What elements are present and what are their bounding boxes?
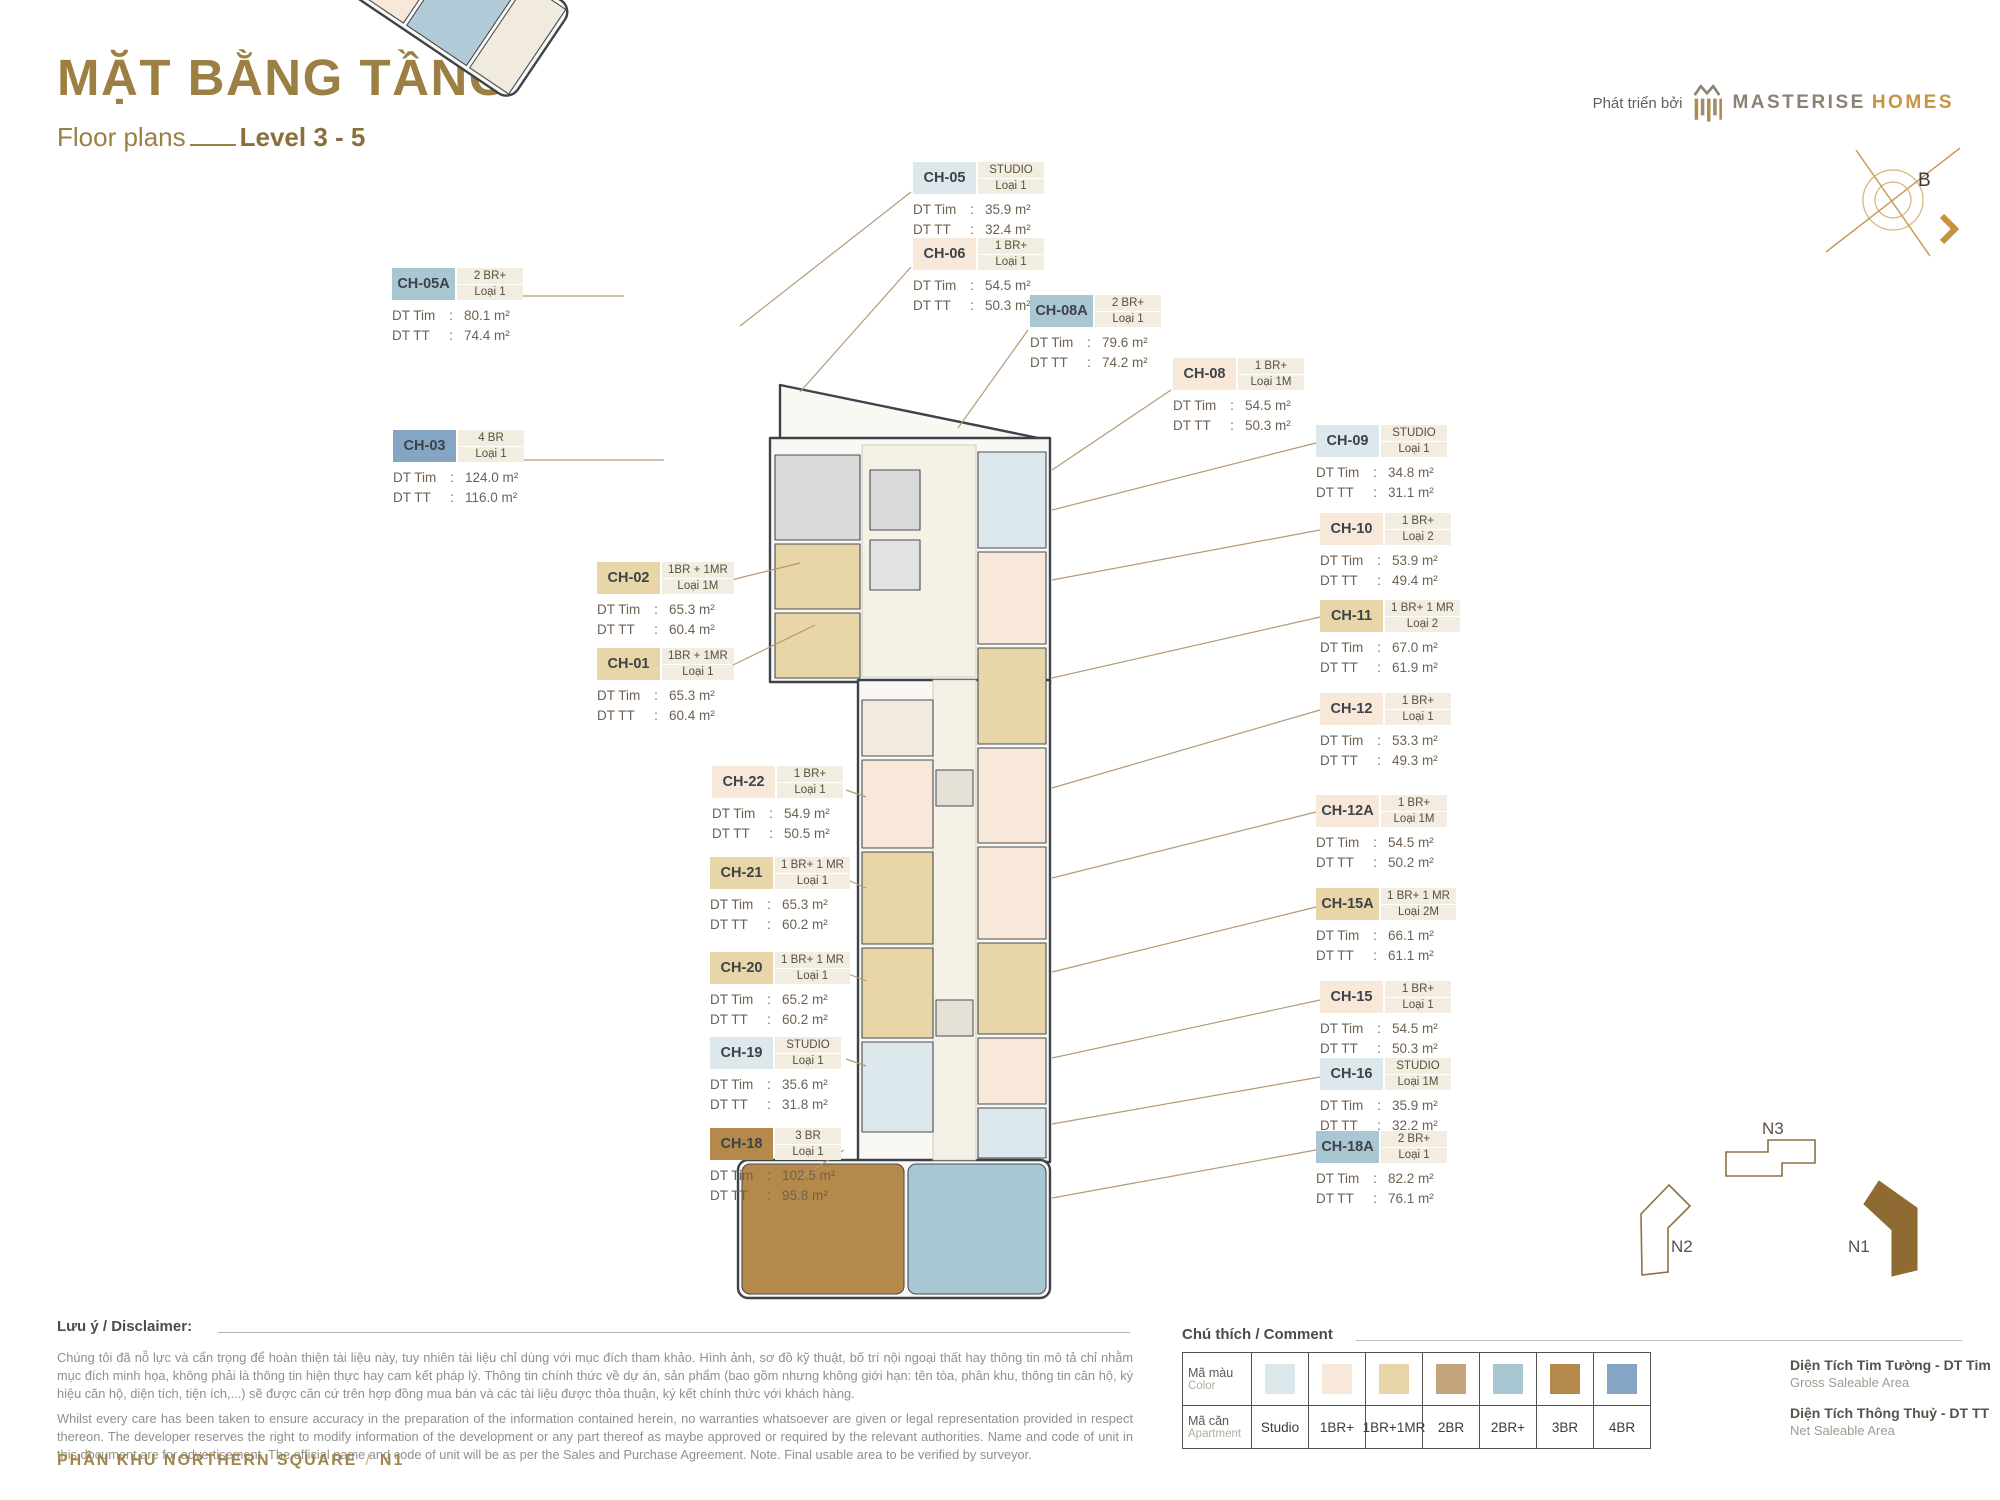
dt-tim-value: 34.8 m² — [1382, 463, 1434, 483]
unit-code: CH-02 — [597, 562, 660, 594]
dt-tt-row: DT TT:60.2 m² — [710, 915, 890, 935]
dt-tim-value: 102.5 m² — [776, 1166, 835, 1186]
dt-tim-label: DT Tim — [393, 468, 445, 488]
unit-variant: Loại 1 — [1095, 312, 1161, 328]
dt-tt-value: 49.3 m² — [1386, 751, 1438, 771]
unit-code: CH-22 — [712, 766, 775, 798]
unit-areas: DT Tim:54.9 m² DT TT:50.5 m² — [712, 804, 892, 844]
unit-type-chip: STUDIO Loại 1 — [978, 162, 1044, 194]
dt-tt-label: DT TT — [712, 824, 764, 844]
unit-areas: DT Tim:65.3 m² DT TT:60.2 m² — [710, 895, 890, 935]
unit-type: 1 BR+ — [1385, 693, 1451, 709]
unit-areas: DT Tim:34.8 m² DT TT:31.1 m² — [1316, 463, 1496, 503]
unit-variant: Loại 1 — [775, 1054, 841, 1070]
dt-tim-row: DT Tim:54.5 m² — [1316, 833, 1496, 853]
minimap-label-n1: N1 — [1848, 1237, 1870, 1256]
unit-type: 1 BR+ — [1381, 795, 1447, 811]
unit-callout: CH-10 1 BR+ Loại 2 DT Tim:53.9 m² DT TT:… — [1320, 513, 1500, 591]
legend-swatch — [1265, 1364, 1295, 1394]
unit-type: 1 BR+ — [1385, 513, 1451, 529]
dt-tim-row: DT Tim:65.3 m² — [597, 600, 777, 620]
dt-tt-label: DT TT — [913, 220, 965, 240]
unit-variant: Loại 1 — [1381, 1148, 1447, 1164]
legend-swatch-cell — [1365, 1353, 1422, 1405]
dt-tt-value: 50.3 m² — [979, 296, 1031, 316]
dt-tt-row: DT TT:95.8 m² — [710, 1186, 890, 1206]
dt-tt-label: DT TT — [710, 1010, 762, 1030]
dt-tt-label: DT TT — [913, 296, 965, 316]
dt-tim-value: 65.3 m² — [663, 600, 715, 620]
unit-type-chip: 1 BR+ Loại 2 — [1385, 513, 1451, 545]
unit-callout: CH-19 STUDIO Loại 1 DT Tim:35.6 m² DT TT… — [710, 1037, 890, 1115]
unit-type-chip: 1 BR+ Loại 1 — [1385, 981, 1451, 1013]
unit-areas: DT Tim:54.5 m² DT TT:50.3 m² — [1320, 1019, 1500, 1059]
dt-tim-label: DT Tim — [1030, 333, 1082, 353]
unit-areas: DT Tim:124.0 m² DT TT:116.0 m² — [393, 468, 573, 508]
unit-areas: DT Tim:102.5 m² DT TT:95.8 m² — [710, 1166, 890, 1206]
unit-type: 1 BR+ — [978, 238, 1044, 254]
legend-type-label: Studio — [1251, 1406, 1308, 1448]
dt-tim-row: DT Tim:54.5 m² — [1320, 1019, 1500, 1039]
unit-areas: DT Tim:53.9 m² DT TT:49.4 m² — [1320, 551, 1500, 591]
zone-name: PHÂN KHU NORTHERN SQUARE — [57, 1452, 357, 1469]
dt-tt-label: DT TT — [1316, 946, 1368, 966]
dt-tt-label: DT TT — [597, 706, 649, 726]
unit-callout: CH-20 1 BR+ 1 MR Loại 1 DT Tim:65.2 m² D… — [710, 952, 890, 1030]
unit-type: STUDIO — [1385, 1058, 1451, 1074]
dt-tt-label: DT TT — [710, 915, 762, 935]
area-definition-en: Gross Saleable Area — [1790, 1374, 1991, 1391]
unit-type: 1 BR+ 1 MR — [775, 857, 850, 873]
unit-chip-row: CH-16 STUDIO Loại 1M — [1320, 1058, 1500, 1090]
unit-chip-row: CH-08A 2 BR+ Loại 1 — [1030, 295, 1210, 327]
unit-areas: DT Tim:35.9 m² DT TT:32.2 m² — [1320, 1096, 1500, 1136]
dt-tt-label: DT TT — [710, 1095, 762, 1115]
unit-code: CH-05 — [913, 162, 976, 194]
legend-swatch — [1436, 1364, 1466, 1394]
unit-callout: CH-12A 1 BR+ Loại 1M DT Tim:54.5 m² DT T… — [1316, 795, 1496, 873]
dt-tim-value: 35.6 m² — [776, 1075, 828, 1095]
unit-type-chip: 1BR + 1MR Loại 1M — [662, 562, 734, 594]
dt-tt-label: DT TT — [393, 488, 445, 508]
minimap-label-n3: N3 — [1762, 1119, 1784, 1138]
unit-callout: CH-11 1 BR+ 1 MR Loại 2 DT Tim:67.0 m² D… — [1320, 600, 1500, 678]
legend-swatches — [1251, 1353, 1650, 1405]
unit-type: 1BR + 1MR — [662, 648, 734, 664]
dt-tim-row: DT Tim:54.5 m² — [1173, 396, 1353, 416]
unit-code: CH-06 — [913, 238, 976, 270]
dt-tim-value: 80.1 m² — [458, 306, 510, 326]
dt-tim-label: DT Tim — [1320, 638, 1372, 658]
dt-tt-label: DT TT — [1316, 483, 1368, 503]
dt-tt-row: DT TT:50.5 m² — [712, 824, 892, 844]
minimap-block-n3-shape — [1726, 1140, 1815, 1176]
area-definition: Diện Tích Thông Thuỷ - DT TT Net Saleabl… — [1790, 1404, 1991, 1439]
unit-callout: CH-15A 1 BR+ 1 MR Loại 2M DT Tim:66.1 m²… — [1316, 888, 1496, 966]
unit-type: STUDIO — [1381, 425, 1447, 441]
unit-type: STUDIO — [978, 162, 1044, 178]
unit-areas: DT Tim:80.1 m² DT TT:74.4 m² — [392, 306, 572, 346]
unit-type: 3 BR — [775, 1128, 841, 1144]
unit-variant: Loại 1 — [457, 285, 523, 301]
disclaimer-paragraph-vn: Chúng tôi đã nỗ lực và cẩn trọng để hoàn… — [57, 1349, 1133, 1403]
dt-tim-value: 54.9 m² — [778, 804, 830, 824]
area-definition: Diện Tích Tim Tường - DT Tim Gross Salea… — [1790, 1356, 1991, 1391]
unit-variant: Loại 1M — [1385, 1075, 1451, 1091]
unit-callout: CH-09 STUDIO Loại 1 DT Tim:34.8 m² DT TT… — [1316, 425, 1496, 503]
dt-tt-value: 116.0 m² — [459, 488, 517, 508]
unit-chip-row: CH-21 1 BR+ 1 MR Loại 1 — [710, 857, 890, 889]
unit-variant: Loại 1 — [978, 255, 1044, 271]
dt-tim-row: DT Tim:53.9 m² — [1320, 551, 1500, 571]
legend-apartment-row: Mã căn Apartment Studio 1BR+ 1BR+1MR 2BR… — [1183, 1405, 1650, 1448]
unit-chip-row: CH-20 1 BR+ 1 MR Loại 1 — [710, 952, 890, 984]
unit-code: CH-05A — [392, 268, 455, 300]
dt-tim-value: 54.5 m² — [1239, 396, 1291, 416]
unit-type: 2 BR+ — [1095, 295, 1161, 311]
dt-tim-label: DT Tim — [710, 895, 762, 915]
dt-tt-label: DT TT — [597, 620, 649, 640]
unit-chip-row: CH-09 STUDIO Loại 1 — [1316, 425, 1496, 457]
disclaimer-heading: Lưu ý / Disclaimer: — [57, 1318, 192, 1335]
unit-type: 1 BR+ 1 MR — [775, 952, 850, 968]
unit-callout: CH-12 1 BR+ Loại 1 DT Tim:53.3 m² DT TT:… — [1320, 693, 1500, 771]
area-definition-en: Net Saleable Area — [1790, 1422, 1991, 1439]
dt-tt-value: 50.3 m² — [1239, 416, 1291, 436]
unit-chip-row: CH-19 STUDIO Loại 1 — [710, 1037, 890, 1069]
dt-tt-label: DT TT — [1316, 1189, 1368, 1209]
unit-areas: DT Tim:35.9 m² DT TT:32.4 m² — [913, 200, 1093, 240]
dt-tt-value: 31.8 m² — [776, 1095, 828, 1115]
dt-tim-label: DT Tim — [1320, 551, 1372, 571]
dt-tim-row: DT Tim:79.6 m² — [1030, 333, 1210, 353]
zone-block: N1 — [380, 1452, 404, 1469]
dt-tt-row: DT TT:49.4 m² — [1320, 571, 1500, 591]
unit-variant: Loại 1M — [1238, 375, 1304, 391]
dt-tim-label: DT Tim — [1320, 1019, 1372, 1039]
unit-callout: CH-18 3 BR Loại 1 DT Tim:102.5 m² DT TT:… — [710, 1128, 890, 1206]
unit-type-chip: STUDIO Loại 1 — [1381, 425, 1447, 457]
unit-variant: Loại 1 — [775, 874, 850, 890]
dt-tt-value: 50.2 m² — [1382, 853, 1434, 873]
legend-type-label: 1BR+ — [1308, 1406, 1365, 1448]
compass-north-label: B — [1918, 170, 1931, 191]
legend-type-label: 3BR — [1536, 1406, 1593, 1448]
dt-tim-row: DT Tim:124.0 m² — [393, 468, 573, 488]
dt-tt-value: 49.4 m² — [1386, 571, 1438, 591]
area-definition-vn: Diện Tích Tim Tường - DT Tim — [1790, 1356, 1991, 1374]
plan-wing-north — [120, 0, 572, 101]
dt-tim-value: 35.9 m² — [1386, 1096, 1438, 1116]
legend-type-label: 2BR — [1422, 1406, 1479, 1448]
unit-type-chip: 2 BR+ Loại 1 — [457, 268, 523, 300]
unit-variant: Loại 1 — [777, 783, 843, 799]
unit-variant: Loại 1 — [1381, 442, 1447, 458]
dt-tt-value: 50.3 m² — [1386, 1039, 1438, 1059]
unit-areas: DT Tim:66.1 m² DT TT:61.1 m² — [1316, 926, 1496, 966]
unit-type-chip: 1 BR+ 1 MR Loại 2M — [1381, 888, 1456, 920]
legend-swatch — [1322, 1364, 1352, 1394]
unit-type-chip: 3 BR Loại 1 — [775, 1128, 841, 1160]
unit-type-chip: 1 BR+ Loại 1 — [777, 766, 843, 798]
zone-footer: PHÂN KHU NORTHERN SQUARE/N1 — [57, 1452, 404, 1470]
dt-tim-value: 54.5 m² — [979, 276, 1031, 296]
unit-variant: Loại 2 — [1385, 617, 1460, 633]
unit-callout: CH-15 1 BR+ Loại 1 DT Tim:54.5 m² DT TT:… — [1320, 981, 1500, 1059]
dt-tim-label: DT Tim — [1320, 731, 1372, 751]
legend-type-label: 1BR+1MR — [1365, 1406, 1422, 1448]
unit-type-chip: STUDIO Loại 1 — [775, 1037, 841, 1069]
legend-swatch-cell — [1308, 1353, 1365, 1405]
unit-areas: DT Tim:82.2 m² DT TT:76.1 m² — [1316, 1169, 1496, 1209]
unit-callout: CH-03 4 BR Loại 1 DT Tim:124.0 m² DT TT:… — [393, 430, 573, 508]
unit-code: CH-10 — [1320, 513, 1383, 545]
legend-swatch — [1550, 1364, 1580, 1394]
unit-code: CH-08 — [1173, 358, 1236, 390]
unit-areas: DT Tim:65.3 m² DT TT:60.4 m² — [597, 600, 777, 640]
dt-tim-row: DT Tim:65.3 m² — [710, 895, 890, 915]
legend-swatch-cell — [1536, 1353, 1593, 1405]
legend-swatch — [1379, 1364, 1409, 1394]
unit-code: CH-18A — [1316, 1131, 1379, 1163]
unit-areas: DT Tim:53.3 m² DT TT:49.3 m² — [1320, 731, 1500, 771]
unit-type-chip: 1 BR+ 1 MR Loại 1 — [775, 952, 850, 984]
dt-tim-label: DT Tim — [1320, 1096, 1372, 1116]
legend-table: Mã màu Color — [1182, 1352, 1651, 1449]
dt-tt-row: DT TT:116.0 m² — [393, 488, 573, 508]
legend-swatch-cell — [1479, 1353, 1536, 1405]
unit-variant: Loại 1M — [662, 579, 734, 595]
legend-title: Chú thích / Comment — [1182, 1326, 1333, 1343]
legend-swatch-cell — [1593, 1353, 1650, 1405]
unit-type-chip: 1 BR+ Loại 1 — [978, 238, 1044, 270]
dt-tt-row: DT TT:74.4 m² — [392, 326, 572, 346]
unit-code: CH-18 — [710, 1128, 773, 1160]
dt-tt-row: DT TT:61.9 m² — [1320, 658, 1500, 678]
dt-tt-value: 60.2 m² — [776, 1010, 828, 1030]
dt-tim-label: DT Tim — [710, 990, 762, 1010]
zone-separator: / — [357, 1452, 379, 1469]
area-definition-vn: Diện Tích Thông Thuỷ - DT TT — [1790, 1404, 1991, 1422]
dt-tim-label: DT Tim — [710, 1166, 762, 1186]
legend-swatch-cell — [1251, 1353, 1308, 1405]
dt-tt-row: DT TT:49.3 m² — [1320, 751, 1500, 771]
dt-tim-row: DT Tim:53.3 m² — [1320, 731, 1500, 751]
unit-code: CH-09 — [1316, 425, 1379, 457]
unit-chip-row: CH-18A 2 BR+ Loại 1 — [1316, 1131, 1496, 1163]
legend-apartment-row-label: Mã căn Apartment — [1183, 1406, 1251, 1448]
unit-code: CH-08A — [1030, 295, 1093, 327]
dt-tim-value: 65.3 m² — [663, 686, 715, 706]
floor-plan-page: B N3 N2 N1 MẶT BẰNG TẦNG Floor plansLeve… — [0, 0, 2000, 1500]
unit-type: 1BR + 1MR — [662, 562, 734, 578]
dt-tt-row: DT TT:50.3 m² — [1320, 1039, 1500, 1059]
dt-tim-label: DT Tim — [712, 804, 764, 824]
dt-tim-label: DT Tim — [1316, 1169, 1368, 1189]
dt-tt-label: DT TT — [1320, 1039, 1372, 1059]
unit-chip-row: CH-06 1 BR+ Loại 1 — [913, 238, 1093, 270]
dt-tim-value: 35.9 m² — [979, 200, 1031, 220]
dt-tim-value: 53.3 m² — [1386, 731, 1438, 751]
unit-type-chip: 1 BR+ 1 MR Loại 2 — [1385, 600, 1460, 632]
dt-tt-value: 60.4 m² — [663, 620, 715, 640]
unit-callout: CH-22 1 BR+ Loại 1 DT Tim:54.9 m² DT TT:… — [712, 766, 892, 844]
dt-tt-value: 31.1 m² — [1382, 483, 1434, 503]
dt-tt-value: 74.2 m² — [1096, 353, 1148, 373]
site-minimap: N3 N2 N1 — [1641, 1119, 1917, 1276]
dt-tim-value: 66.1 m² — [1382, 926, 1434, 946]
dt-tt-label: DT TT — [392, 326, 444, 346]
unit-chip-row: CH-08 1 BR+ Loại 1M — [1173, 358, 1353, 390]
unit-areas: DT Tim:65.2 m² DT TT:60.2 m² — [710, 990, 890, 1030]
unit-chip-row: CH-03 4 BR Loại 1 — [393, 430, 573, 462]
dt-tim-row: DT Tim:67.0 m² — [1320, 638, 1500, 658]
unit-type-chip: 1 BR+ Loại 1M — [1381, 795, 1447, 827]
unit-code: CH-15 — [1320, 981, 1383, 1013]
unit-variant: Loại 2M — [1381, 905, 1456, 921]
unit-code: CH-03 — [393, 430, 456, 462]
unit-chip-row: CH-11 1 BR+ 1 MR Loại 2 — [1320, 600, 1500, 632]
dt-tt-value: 95.8 m² — [776, 1186, 828, 1206]
dt-tt-label: DT TT — [1316, 853, 1368, 873]
unit-code: CH-20 — [710, 952, 773, 984]
floor-plan — [120, 0, 1050, 1298]
dt-tim-value: 82.2 m² — [1382, 1169, 1434, 1189]
dt-tt-label: DT TT — [1320, 571, 1372, 591]
dt-tim-row: DT Tim:65.3 m² — [597, 686, 777, 706]
dt-tim-label: DT Tim — [1173, 396, 1225, 416]
unit-variant: Loại 1 — [775, 1145, 841, 1161]
dt-tt-value: 61.1 m² — [1382, 946, 1434, 966]
dt-tim-label: DT Tim — [1316, 926, 1368, 946]
dt-tim-row: DT Tim:34.8 m² — [1316, 463, 1496, 483]
unit-variant: Loại 2 — [1385, 530, 1451, 546]
legend-color-row-label: Mã màu Color — [1183, 1353, 1251, 1405]
unit-callout: CH-21 1 BR+ 1 MR Loại 1 DT Tim:65.3 m² D… — [710, 857, 890, 935]
legend-color-row: Mã màu Color — [1183, 1353, 1650, 1405]
unit-chip-row: CH-12 1 BR+ Loại 1 — [1320, 693, 1500, 725]
unit-type-chip: 2 BR+ Loại 1 — [1381, 1131, 1447, 1163]
unit-variant: Loại 1 — [775, 969, 850, 985]
dt-tt-label: DT TT — [1320, 658, 1372, 678]
unit-type-chip: STUDIO Loại 1M — [1385, 1058, 1451, 1090]
unit-code: CH-12 — [1320, 693, 1383, 725]
unit-type-chip: 1 BR+ 1 MR Loại 1 — [775, 857, 850, 889]
dt-tim-value: 65.2 m² — [776, 990, 828, 1010]
dt-tim-value: 67.0 m² — [1386, 638, 1438, 658]
unit-code: CH-16 — [1320, 1058, 1383, 1090]
unit-type: 1 BR+ — [1238, 358, 1304, 374]
dt-tt-row: DT TT:76.1 m² — [1316, 1189, 1496, 1209]
unit-areas: DT Tim:65.3 m² DT TT:60.4 m² — [597, 686, 777, 726]
dt-tt-label: DT TT — [1173, 416, 1225, 436]
unit-callout: CH-18A 2 BR+ Loại 1 DT Tim:82.2 m² DT TT… — [1316, 1131, 1496, 1209]
compass-icon: B — [1826, 148, 1960, 256]
dt-tt-row: DT TT:32.4 m² — [913, 220, 1093, 240]
dt-tt-row: DT TT:31.8 m² — [710, 1095, 890, 1115]
legend-swatch — [1607, 1364, 1637, 1394]
unit-chip-row: CH-12A 1 BR+ Loại 1M — [1316, 795, 1496, 827]
unit-type: STUDIO — [775, 1037, 841, 1053]
unit-chip-row: CH-05 STUDIO Loại 1 — [913, 162, 1093, 194]
unit-type: 1 BR+ 1 MR — [1381, 888, 1456, 904]
unit-variant: Loại 1 — [978, 179, 1044, 195]
dt-tim-row: DT Tim:102.5 m² — [710, 1166, 890, 1186]
unit-chip-row: CH-22 1 BR+ Loại 1 — [712, 766, 892, 798]
unit-chip-row: CH-18 3 BR Loại 1 — [710, 1128, 890, 1160]
unit-type: 2 BR+ — [457, 268, 523, 284]
unit-code: CH-15A — [1316, 888, 1379, 920]
unit-code: CH-01 — [597, 648, 660, 680]
unit-type-chip: 1BR + 1MR Loại 1 — [662, 648, 734, 680]
unit-callout: CH-05A 2 BR+ Loại 1 DT Tim:80.1 m² DT TT… — [392, 268, 572, 346]
dt-tim-row: DT Tim:66.1 m² — [1316, 926, 1496, 946]
dt-tim-row: DT Tim:80.1 m² — [392, 306, 572, 326]
dt-tim-label: DT Tim — [597, 686, 649, 706]
unit-type: 1 BR+ 1 MR — [1385, 600, 1460, 616]
dt-tt-value: 60.4 m² — [663, 706, 715, 726]
unit-chip-row: CH-15 1 BR+ Loại 1 — [1320, 981, 1500, 1013]
dt-tt-label: DT TT — [1030, 353, 1082, 373]
unit-code: CH-11 — [1320, 600, 1383, 632]
dt-tim-label: DT Tim — [1316, 463, 1368, 483]
dt-tt-row: DT TT:61.1 m² — [1316, 946, 1496, 966]
unit-callout: CH-16 STUDIO Loại 1M DT Tim:35.9 m² DT T… — [1320, 1058, 1500, 1136]
dt-tt-value: 76.1 m² — [1382, 1189, 1434, 1209]
unit-code: CH-12A — [1316, 795, 1379, 827]
dt-tim-label: DT Tim — [597, 600, 649, 620]
minimap-block-n2-shape — [1641, 1185, 1690, 1275]
dt-tt-label: DT TT — [710, 1186, 762, 1206]
unit-callout: CH-01 1BR + 1MR Loại 1 DT Tim:65.3 m² DT… — [597, 648, 777, 726]
legend-swatch — [1493, 1364, 1523, 1394]
dt-tt-value: 50.5 m² — [778, 824, 830, 844]
unit-callout: CH-05 STUDIO Loại 1 DT Tim:35.9 m² DT TT… — [913, 162, 1093, 240]
dt-tt-value: 61.9 m² — [1386, 658, 1438, 678]
dt-tt-row: DT TT:60.4 m² — [597, 706, 777, 726]
dt-tt-value: 60.2 m² — [776, 915, 828, 935]
unit-variant: Loại 1 — [1385, 710, 1451, 726]
unit-variant: Loại 1 — [662, 665, 734, 681]
unit-chip-row: CH-10 1 BR+ Loại 2 — [1320, 513, 1500, 545]
dt-tim-value: 54.5 m² — [1386, 1019, 1438, 1039]
dt-tt-value: 74.4 m² — [458, 326, 510, 346]
legend-swatch-cell — [1422, 1353, 1479, 1405]
unit-type-chip: 2 BR+ Loại 1 — [1095, 295, 1161, 327]
unit-code: CH-21 — [710, 857, 773, 889]
unit-chip-row: CH-02 1BR + 1MR Loại 1M — [597, 562, 777, 594]
dt-tim-label: DT Tim — [710, 1075, 762, 1095]
unit-type-chip: 1 BR+ Loại 1M — [1238, 358, 1304, 390]
legend-type-label: 2BR+ — [1479, 1406, 1536, 1448]
dt-tim-label: DT Tim — [1316, 833, 1368, 853]
dt-tim-row: DT Tim:54.5 m² — [913, 276, 1093, 296]
unit-variant: Loại 1 — [1385, 998, 1451, 1014]
unit-type-chip: 4 BR Loại 1 — [458, 430, 524, 462]
area-definitions: Diện Tích Tim Tường - DT Tim Gross Salea… — [1790, 1356, 1991, 1452]
dt-tim-value: 54.5 m² — [1382, 833, 1434, 853]
dt-tim-value: 53.9 m² — [1386, 551, 1438, 571]
unit-type-chip: 1 BR+ Loại 1 — [1385, 693, 1451, 725]
unit-chip-row: CH-15A 1 BR+ 1 MR Loại 2M — [1316, 888, 1496, 920]
unit-type: 1 BR+ — [1385, 981, 1451, 997]
unit-type: 1 BR+ — [777, 766, 843, 782]
dt-tt-label: DT TT — [1320, 751, 1372, 771]
dt-tim-row: DT Tim:54.9 m² — [712, 804, 892, 824]
dt-tim-label: DT Tim — [392, 306, 444, 326]
unit-variant: Loại 1M — [1381, 812, 1447, 828]
dt-tim-row: DT Tim:35.6 m² — [710, 1075, 890, 1095]
